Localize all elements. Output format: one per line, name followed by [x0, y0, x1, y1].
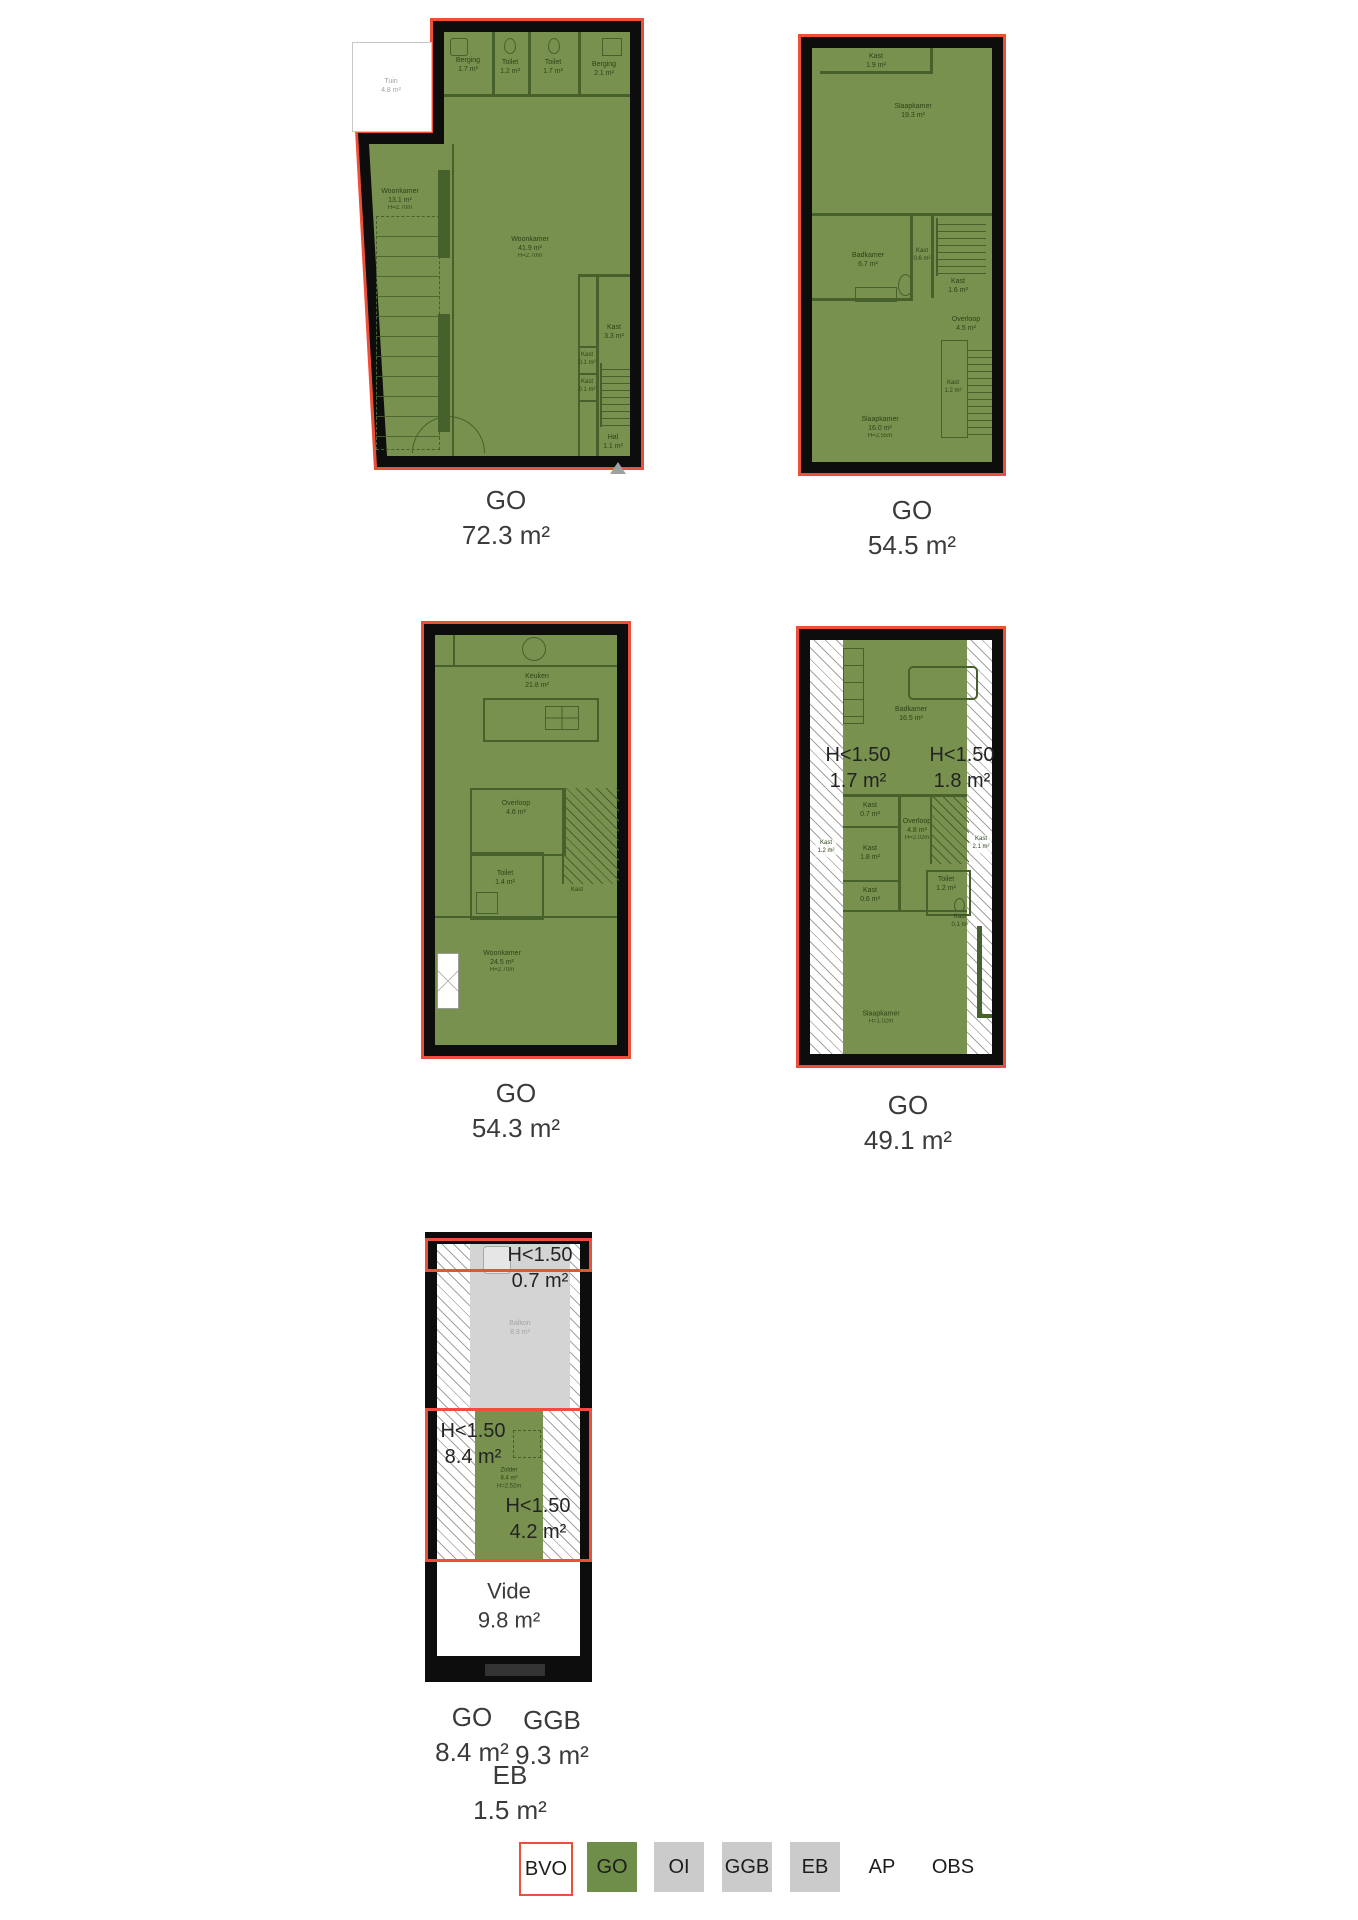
toilet-icon: [548, 38, 560, 54]
stairs: [562, 788, 619, 884]
room-label-kast: Kast 0.1 m²: [578, 352, 595, 368]
wall: [444, 94, 630, 97]
area-code: EB: [440, 1758, 580, 1793]
room-area: 4.5 m²: [956, 324, 976, 333]
washer-icon: [602, 38, 622, 56]
height-area: 1.8 m²: [929, 768, 994, 794]
legend-label: GGB: [725, 1856, 769, 1879]
floorplan-5: H<1.50 0.7 m² Balkon 8.9 m² H<1.50 8.4 m…: [425, 1232, 592, 1682]
room-name: Berging: [592, 60, 616, 69]
toilet-icon: [504, 38, 516, 54]
legend-label: GO: [596, 1856, 627, 1879]
room-area: 8.9 m²: [510, 1328, 530, 1337]
room-label-berging: Berging 2.1 m²: [592, 60, 616, 78]
room-label-kast: Kast 0.1 m²: [951, 914, 968, 930]
room-label-kast: Kast 3.3 m²: [604, 323, 624, 341]
room-name: Kast: [581, 352, 593, 360]
room-name: Kast: [863, 886, 877, 895]
legend-item-ggb: GGB: [722, 1842, 772, 1892]
room-name: Vide: [478, 1577, 540, 1606]
height-restriction-label: H<1.50 8.4 m²: [440, 1418, 505, 1470]
room-name: Toilet: [545, 58, 561, 67]
room-label-kast: Kast 1.9 m²: [866, 52, 886, 70]
room-name: Woonkamer: [381, 187, 419, 196]
room-area: 41.9 m²: [518, 244, 542, 253]
room-label-kast: Kast: [571, 887, 583, 895]
room-area: 9.8 m²: [478, 1606, 540, 1635]
area-value: 49.1 m²: [828, 1123, 988, 1158]
wall: [578, 32, 581, 94]
room-name: Slaapkamer: [894, 102, 931, 111]
wall: [898, 794, 901, 910]
stove-icon: [545, 706, 579, 730]
area-value: 1.5 m²: [440, 1793, 580, 1828]
room-label-badkamer: Badkamer 6.7 m²: [852, 251, 884, 269]
room-name: Toilet: [938, 875, 954, 884]
wall: [977, 1014, 992, 1018]
room-label-kast: Kast 1.2 m²: [815, 839, 836, 857]
vide-label: Vide 9.8 m²: [478, 1577, 540, 1634]
room-height: H=2.70m: [490, 967, 515, 975]
area-value: 54.5 m²: [832, 528, 992, 563]
stairs: [600, 363, 630, 427]
room-name: Kast: [975, 836, 987, 844]
room-area: 21.8 m²: [525, 681, 549, 690]
wall: [578, 274, 630, 277]
wall: [977, 926, 982, 1018]
legend-label: BVO: [525, 1858, 567, 1881]
room-name: Badkamer: [852, 251, 884, 260]
floorplan-1: Tuin 4.8 m² Berging 1.7 m² Toilet 1.2 m²…: [352, 18, 644, 470]
room-height: H=2.02m: [905, 835, 930, 843]
room-label-woonkamer: Woonkamer 24.5 m² H=2.70m: [483, 949, 521, 975]
room-name: Hal: [608, 433, 619, 442]
room-area: 1.4 m²: [495, 878, 515, 887]
legend: BVO GO OI GGB EB AP OBS: [0, 1842, 1358, 1892]
room-area: 1.2 m²: [936, 884, 956, 893]
room-name: Slaapkamer: [862, 1010, 899, 1019]
area-value: 54.3 m²: [436, 1111, 596, 1146]
room-label-badkamer: Badkamer 16.5 m²: [895, 705, 927, 723]
area-total-label: GO 54.3 m²: [436, 1076, 596, 1146]
room-name: Slaapkamer: [861, 415, 898, 424]
room-area: 0.6 m²: [860, 895, 880, 904]
room-label-woonkamer: Woonkamer 13.1 m² H=2.70m: [381, 187, 419, 213]
area-code: GO: [436, 1076, 596, 1111]
room-area: 0.1 m²: [951, 922, 968, 930]
room-name: Balkon: [509, 1319, 530, 1328]
room-label-kast: Kast 0.6 m²: [860, 886, 880, 904]
wall: [578, 346, 596, 348]
room-area: 1.7 m²: [458, 65, 478, 74]
room-height: H=2.55m: [868, 433, 893, 441]
wall: [930, 48, 933, 74]
room-label-kast: Kast 1.8 m²: [860, 844, 880, 862]
room-area: 1.8 m²: [860, 853, 880, 862]
wall: [843, 826, 898, 828]
wall-window: [485, 1664, 545, 1676]
room-label-toilet: Toilet 1.7 m²: [543, 58, 563, 76]
area-value: 72.3 m²: [426, 518, 586, 553]
room-area: 2.1 m²: [972, 844, 989, 852]
wall: [843, 880, 898, 882]
room-name: Kast: [954, 914, 966, 922]
bathtub-icon: [908, 666, 978, 700]
wall: [435, 665, 617, 667]
wall: [578, 400, 596, 402]
wall: [528, 32, 531, 94]
height-limit: H<1.50: [505, 1493, 570, 1519]
room-label-kast: Kast 2.1 m²: [970, 835, 991, 853]
height-restriction-label: H<1.50 1.7 m²: [825, 742, 890, 794]
room-label-woonkamer: Woonkamer 41.9 m² H=2.70m: [511, 235, 549, 261]
room-name: Overloop: [952, 315, 980, 324]
area-code: GO: [832, 493, 992, 528]
wall: [578, 373, 596, 375]
room-name: Kast: [916, 248, 928, 256]
height-restriction-label: H<1.50 1.8 m²: [929, 742, 994, 794]
floorplan-2: Kast 1.9 m² Slaapkamer 19.3 m² Badkamer …: [798, 34, 1006, 476]
room-area: 16.0 m²: [868, 424, 892, 433]
floorplan-sheet: Tuin 4.8 m² Berging 1.7 m² Toilet 1.2 m²…: [0, 0, 1358, 1920]
room-name: Kast: [863, 844, 877, 853]
floorplan-4: Badkamer 16.5 m² H<1.50 1.7 m² H<1.50 1.…: [796, 626, 1006, 1068]
area-total-label: GO 72.3 m²: [426, 483, 586, 553]
height-area: 4.2 m²: [505, 1519, 570, 1545]
room-area: 1.2 m²: [944, 388, 961, 396]
room-height: H=2.70m: [518, 253, 543, 261]
room-area: 6.7 m²: [858, 260, 878, 269]
hatch-detail: [513, 1430, 541, 1458]
room-label-zolder: Zolder 8.4 m² H=2.52m: [497, 1467, 522, 1490]
room-label-toilet: Toilet 1.4 m²: [495, 869, 515, 887]
area-total-label: EB 1.5 m²: [440, 1758, 580, 1828]
room-name: Overloop: [502, 799, 530, 808]
room-label-kast: Kast 0.6 m²: [913, 248, 930, 264]
legend-label: OBS: [932, 1856, 974, 1879]
stairs: [930, 797, 969, 864]
legend-item-obs: OBS: [918, 1842, 988, 1892]
room-name: Woonkamer: [483, 949, 521, 958]
room-area: 1.1 m²: [603, 442, 623, 451]
room-area: 4.6 m²: [506, 808, 526, 817]
height-restriction-label: H<1.50 4.2 m²: [505, 1493, 570, 1545]
room-name: Kast: [863, 801, 877, 810]
area-code: GO: [828, 1088, 988, 1123]
stairs: [968, 344, 992, 436]
kitchen-island: [483, 698, 599, 742]
room-area: 19.3 m²: [901, 111, 925, 120]
room-label-kast: Kast 1.2 m²: [944, 380, 961, 396]
height-restriction-label: H<1.50 0.7 m²: [507, 1242, 572, 1294]
height-area: 8.4 m²: [440, 1444, 505, 1470]
wall: [820, 71, 932, 74]
toilet-icon: [954, 898, 965, 912]
room-label-overloop: Overloop 4.8 m² H=2.02m: [903, 817, 931, 843]
toilet-icon: [898, 274, 913, 296]
room-area: 0.7 m²: [860, 810, 880, 819]
room-name: Overloop: [903, 817, 931, 826]
room-area: 3.3 m²: [604, 332, 624, 341]
room-label-tuin: Tuin 4.8 m²: [381, 77, 401, 95]
room-name: Zolder: [500, 1467, 517, 1475]
room-name: Tuin: [384, 77, 397, 86]
height-limit: H<1.50: [507, 1242, 572, 1268]
height-limit: H<1.50: [440, 1418, 505, 1444]
room-area: 0.1 m²: [578, 387, 595, 395]
room-area: 1.6 m²: [948, 286, 968, 295]
legend-item-ap: AP: [853, 1842, 911, 1892]
wall: [452, 144, 454, 456]
wall: [596, 274, 599, 456]
sink-icon: [476, 892, 498, 914]
room-name: Toilet: [497, 869, 513, 878]
window-icon: [437, 953, 459, 1009]
room-name: Kast: [571, 887, 583, 895]
room-area: 4.8 m²: [907, 826, 927, 835]
room-label-keuken: Keuken 21.8 m²: [525, 672, 549, 690]
height-limit: H<1.50: [825, 742, 890, 768]
room-area: 0.1 m²: [578, 360, 595, 368]
wall: [492, 32, 495, 94]
room-label-slaapkamer: Slaapkamer 19.3 m²: [894, 102, 931, 120]
room-name: Berging: [456, 56, 480, 65]
room-name: Kast: [820, 840, 832, 848]
room-area: 1.9 m²: [866, 61, 886, 70]
room-height: H=1.02m: [869, 1019, 894, 1027]
room-label-overloop: Overloop 4.6 m²: [502, 799, 530, 817]
wardrobe-icon: [376, 216, 440, 450]
area-code: GO: [426, 483, 586, 518]
room-name: Kast: [869, 52, 883, 61]
boiler-icon: [450, 38, 468, 56]
room-area: 4.8 m²: [381, 86, 401, 95]
legend-label: AP: [869, 1856, 896, 1879]
north-arrow-icon: [610, 462, 626, 474]
room-area: 1.2 m²: [817, 848, 834, 856]
legend-item-oi: OI: [654, 1842, 704, 1892]
room-height: H=2.52m: [497, 1483, 522, 1491]
room-area: 8.4 m²: [500, 1475, 517, 1483]
room-area: 0.6 m²: [913, 256, 930, 264]
room-height: H=2.70m: [388, 205, 413, 213]
height-area: 1.7 m²: [825, 768, 890, 794]
wall: [812, 213, 992, 216]
sink-icon: [522, 637, 546, 661]
wall: [453, 635, 455, 665]
room-label-slaapkamer: Slaapkamer 16.0 m² H=2.55m: [861, 415, 898, 441]
room-area: 2.1 m²: [594, 69, 614, 78]
legend-label: OI: [668, 1856, 689, 1879]
floorplan-3: Keuken 21.8 m² Overloop 4.6 m² Toilet 1.…: [421, 621, 631, 1059]
stairs: [936, 218, 986, 276]
area-total-label: GO 49.1 m²: [828, 1088, 988, 1158]
wall: [931, 216, 934, 298]
room-name: Kast: [947, 380, 959, 388]
room-label-toilet: Toilet 1.2 m²: [936, 875, 956, 893]
room-label-overloop: Overloop 4.5 m²: [952, 315, 980, 333]
wall: [812, 298, 913, 301]
room-name: Kast: [581, 379, 593, 387]
room-area: 1.7 m²: [543, 67, 563, 76]
height-limit: H<1.50: [929, 742, 994, 768]
room-area: 13.1 m²: [388, 196, 412, 205]
room-label-kast: Kast 1.6 m²: [948, 277, 968, 295]
legend-item-eb: EB: [790, 1842, 840, 1892]
room-label-berging: Berging 1.7 m²: [456, 56, 480, 74]
legend-label: EB: [802, 1856, 829, 1879]
room-area: 16.5 m²: [899, 714, 923, 723]
room-label-hal: Hal 1.1 m²: [603, 433, 623, 451]
room-label-slaapkamer: Slaapkamer H=1.02m: [862, 1010, 899, 1027]
room-name: Badkamer: [895, 705, 927, 714]
area-total-label: GO 54.5 m²: [832, 493, 992, 563]
room-area: 1.2 m²: [500, 67, 520, 76]
area-code: GGB: [482, 1703, 622, 1738]
wall: [435, 916, 617, 918]
room-name: Kast: [951, 277, 965, 286]
room-name: Toilet: [502, 58, 518, 67]
room-label-kast: Kast 0.1 m²: [578, 379, 595, 395]
room-label-kast: Kast 0.7 m²: [860, 801, 880, 819]
room-name: Woonkamer: [511, 235, 549, 244]
wardrobe-icon: [843, 648, 864, 724]
room-label-toilet: Toilet 1.2 m²: [500, 58, 520, 76]
legend-item-go: GO: [587, 1842, 637, 1892]
room-label-balkon: Balkon 8.9 m²: [509, 1319, 530, 1337]
room-area: 24.5 m²: [490, 958, 514, 967]
legend-item-bvo: BVO: [519, 1842, 573, 1896]
height-area: 0.7 m²: [507, 1268, 572, 1294]
room-name: Kast: [607, 323, 621, 332]
room-name: Keuken: [525, 672, 549, 681]
